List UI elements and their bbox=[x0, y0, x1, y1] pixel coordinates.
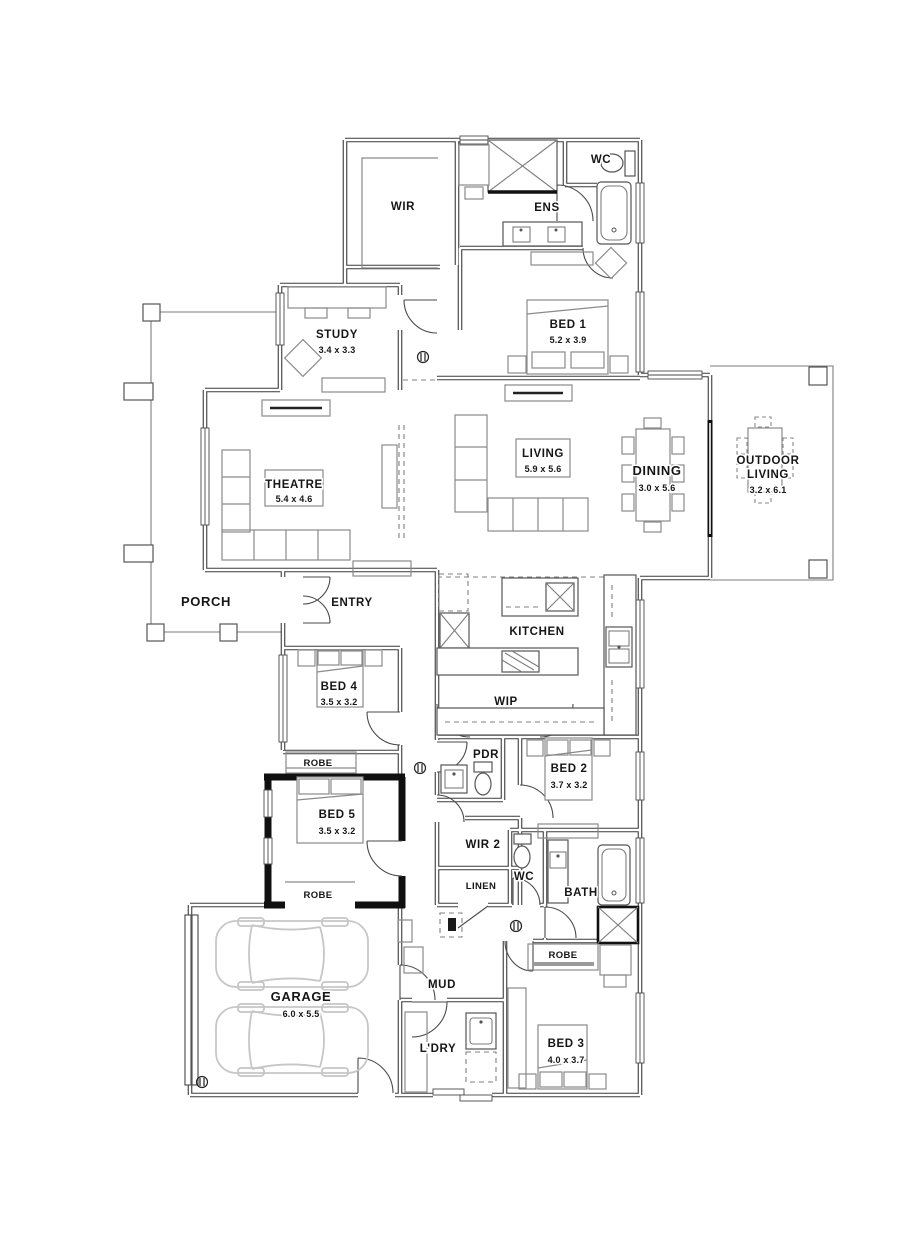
label-ldry: L'DRY bbox=[420, 1043, 457, 1055]
kitchen-fixtures bbox=[437, 574, 636, 735]
label-wip: WIP bbox=[494, 696, 518, 708]
bed3-desk bbox=[600, 945, 631, 987]
toilet-icon bbox=[474, 762, 492, 795]
label-robe4: ROBE bbox=[303, 758, 332, 769]
garage-door-icon bbox=[185, 915, 198, 1085]
vanity-icon bbox=[503, 222, 582, 246]
svg-text:3.2 x 6.1: 3.2 x 6.1 bbox=[750, 485, 787, 495]
cooktop-icon bbox=[502, 651, 539, 672]
svg-text:3.7 x 3.2: 3.7 x 3.2 bbox=[551, 780, 588, 790]
svg-text:6.0 x 5.5: 6.0 x 5.5 bbox=[283, 1009, 320, 1019]
label-garage: GARAGE bbox=[271, 989, 332, 1004]
svg-text:4.0 x 3.7: 4.0 x 3.7 bbox=[548, 1055, 585, 1065]
svg-text:3.5 x 3.2: 3.5 x 3.2 bbox=[321, 697, 358, 707]
wir-shelving bbox=[362, 158, 438, 268]
label-wc2: WC bbox=[514, 871, 534, 883]
label-robe5: ROBE bbox=[303, 890, 332, 901]
label-bed1: BED 1 bbox=[550, 319, 587, 331]
pdr-vanity-icon bbox=[441, 765, 467, 793]
label-bath: BATH bbox=[564, 887, 598, 899]
floor-plan-drawing: WIR WC ENS BED 1 5.2 x 3.9 STUDY 3.4 x 3… bbox=[0, 0, 901, 1246]
label-bed3: BED 3 bbox=[548, 1038, 585, 1050]
label-bed2: BED 2 bbox=[551, 763, 588, 775]
shower-icon bbox=[488, 140, 557, 192]
label-theatre: THEATRE bbox=[265, 479, 323, 491]
label-bed4: BED 4 bbox=[321, 681, 358, 693]
label-wc-ens: WC bbox=[591, 154, 611, 166]
svg-text:5.2 x 3.9: 5.2 x 3.9 bbox=[550, 335, 587, 345]
bathtub-icon bbox=[597, 182, 631, 244]
toilet-icon bbox=[514, 834, 531, 868]
svg-text:5.4 x 4.6: 5.4 x 4.6 bbox=[276, 494, 313, 504]
label-wir: WIR bbox=[391, 201, 415, 213]
label-wir2: WIR 2 bbox=[466, 839, 501, 851]
dashed-openings bbox=[399, 380, 605, 577]
bed3-cabinet bbox=[508, 988, 526, 1088]
label-kitchen: KITCHEN bbox=[509, 626, 564, 638]
svg-text:LIVING: LIVING bbox=[747, 469, 789, 481]
label-robe3: ROBE bbox=[548, 950, 577, 961]
label-dining: DINING bbox=[632, 463, 681, 478]
label-mud: MUD bbox=[428, 979, 456, 991]
label-bed5: BED 5 bbox=[319, 809, 356, 821]
shower-icon bbox=[598, 907, 638, 943]
label-outdoor-living: OUTDOOR bbox=[737, 455, 800, 467]
svg-text:3.4 x 3.3: 3.4 x 3.3 bbox=[319, 345, 356, 355]
fridge-icon bbox=[440, 613, 469, 648]
kitchen-sink-icon bbox=[606, 627, 632, 667]
label-linen: LINEN bbox=[466, 881, 497, 892]
label-ens: ENS bbox=[534, 202, 559, 214]
label-entry: ENTRY bbox=[331, 597, 373, 609]
bed1-furniture bbox=[508, 247, 628, 374]
laundry-sliding-door bbox=[433, 1089, 492, 1101]
label-living: LIVING bbox=[522, 448, 564, 460]
svg-text:3.5 x 3.2: 3.5 x 3.2 bbox=[319, 826, 356, 836]
pdr-fixtures bbox=[441, 762, 492, 795]
mud-fixtures bbox=[398, 913, 462, 973]
sink-icon bbox=[546, 583, 574, 611]
bathtub-icon bbox=[598, 845, 630, 905]
wir-nook bbox=[459, 145, 489, 199]
label-pdr: PDR bbox=[473, 749, 499, 761]
svg-text:3.0 x 5.6: 3.0 x 5.6 bbox=[639, 483, 676, 493]
trough-icon bbox=[466, 1013, 496, 1049]
svg-text:5.9 x 5.6: 5.9 x 5.6 bbox=[525, 464, 562, 474]
label-study: STUDY bbox=[316, 329, 358, 341]
label-porch: PORCH bbox=[181, 594, 231, 609]
floor-plan-page: WIR WC ENS BED 1 5.2 x 3.9 STUDY 3.4 x 3… bbox=[0, 0, 901, 1246]
